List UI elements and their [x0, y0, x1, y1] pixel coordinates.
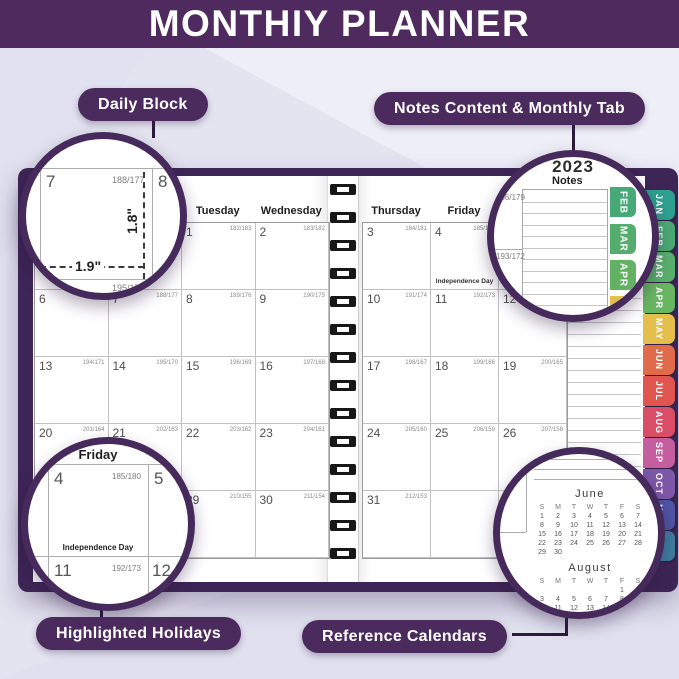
mini-calendar-date: 2: [630, 586, 646, 595]
notes-line: [534, 459, 650, 460]
product-image: MONTHIY PLANNER SundayMondayTuesdayWedne…: [0, 0, 679, 679]
holiday-label: Independence Day: [431, 278, 498, 285]
spiral-coil: [330, 520, 356, 531]
mini-calendar-date: [598, 548, 614, 557]
spiral-coil: [330, 324, 356, 335]
row-boundary-line: [494, 249, 522, 250]
magnified-month-tab-feb: FEB: [610, 187, 636, 217]
day-of-year-annotation: 198/167: [405, 360, 427, 366]
month-tab-label: SEP: [654, 442, 664, 463]
mini-calendar-date: 1: [614, 586, 630, 595]
title-banner: MONTHIY PLANNER: [0, 0, 679, 48]
mini-calendar-date: [614, 548, 630, 557]
day-of-year-annotation: 186/179: [496, 193, 525, 202]
mini-calendar-date: 26: [598, 539, 614, 548]
mini-calendar-date: 15: [534, 530, 550, 539]
callout-daily-block-label: Daily Block: [98, 96, 188, 114]
magnified-notes-line: [523, 213, 607, 214]
mini-calendar-date: 28: [630, 539, 646, 548]
day-of-year-annotation: 196/169: [230, 360, 252, 366]
month-tab-label: APR: [654, 287, 664, 309]
day-number: 30: [260, 493, 273, 507]
day-of-year-annotation: 194/171: [83, 360, 105, 366]
day-of-year-annotation: 192/173: [473, 293, 495, 299]
notes-line: [568, 322, 641, 323]
mini-calendar-date: 19: [598, 530, 614, 539]
mini-calendar-date: 6: [614, 512, 630, 521]
calendar-cell: 8189/176: [182, 290, 256, 357]
connector-daily-block: [152, 118, 155, 138]
month-tab-label: OCT: [654, 473, 664, 495]
month-tab-jun: JUN: [643, 345, 675, 375]
day-header-fragment: ay: [502, 176, 513, 187]
spiral-coil: [330, 380, 356, 391]
magnified-month-tab-mar: MAR: [610, 224, 636, 254]
mini-calendar-date: 23: [550, 539, 566, 548]
mini-calendar-dow: T: [566, 503, 582, 512]
calendar-cell: 31212/153: [363, 491, 431, 558]
mini-calendar-date: 8: [614, 595, 630, 604]
day-number: 1: [186, 225, 193, 239]
magnified-notes-line: [523, 225, 607, 226]
mini-calendar-date: 3: [534, 595, 550, 604]
calendar-cell: 18199/166: [431, 357, 499, 424]
mini-calendar-date: [582, 586, 598, 595]
spiral-coil: [330, 184, 356, 195]
mini-calendar-date: 12: [566, 604, 582, 613]
calendar-cell: 22203/162: [182, 424, 256, 491]
day-of-year-annotation: 207/158: [541, 427, 563, 433]
notes-line: [568, 346, 641, 347]
spiral-coil: [330, 296, 356, 307]
notes-line: [568, 358, 641, 359]
day-of-year-annotation: 189/176: [230, 293, 252, 299]
magnified-month-tab-label: APR: [618, 263, 629, 287]
mini-calendar-dow: M: [550, 577, 566, 586]
mini-calendar-title: August: [534, 562, 646, 574]
mini-calendar-date: 2: [550, 512, 566, 521]
magnified-notes-line: [523, 282, 607, 283]
month-tab-jul: JUL: [643, 376, 675, 406]
day-of-year-annotation: 193/172: [496, 252, 525, 261]
month-tab-apr: APR: [643, 283, 675, 313]
day-header: Thursday: [362, 205, 430, 217]
mini-calendar-date: 13: [582, 604, 598, 613]
mini-calendar-date: 11: [582, 521, 598, 530]
mini-calendar-date: 12: [598, 521, 614, 530]
row-boundary-line: [500, 532, 526, 533]
notes-tab-magnifier: 2023 ay Notes 186/179 193/172 FEBMARAPRM…: [487, 150, 659, 322]
magnified-next-day-number: 5: [154, 469, 163, 489]
magnified-notes-line: [523, 259, 607, 260]
mini-calendar-date: 5: [598, 512, 614, 521]
mini-calendar-date: 15: [614, 604, 630, 613]
day-of-year-annotation: 192/173: [112, 564, 141, 573]
reference-calendars-magnifier: JuneSMTWTFS12345678910111213141516171819…: [493, 447, 665, 619]
height-dimension-label: 1.8": [124, 205, 140, 237]
calendar-cell: 15196/169: [182, 357, 256, 424]
mini-calendar-date: 19: [566, 613, 582, 619]
magnified-below-day-number: 11: [54, 561, 72, 581]
day-number: 4: [435, 225, 442, 239]
day-of-year-annotation: 197/168: [303, 360, 325, 366]
month-tab-label: JUL: [654, 381, 664, 401]
mini-calendar-date: 7: [598, 595, 614, 604]
day-number: 23: [260, 426, 273, 440]
calendar-cell: 1182/183: [182, 223, 256, 290]
day-number: 19: [503, 359, 516, 373]
notes-line: [568, 406, 641, 407]
notes-line: [534, 469, 650, 470]
mini-calendar-date: [582, 548, 598, 557]
callout-notes-tab-label: Notes Content & Monthly Tab: [394, 100, 625, 118]
mini-calendar-date: 18: [582, 530, 598, 539]
year-label: 2023: [494, 157, 652, 177]
mini-calendar-dow: S: [534, 503, 550, 512]
width-dimension-label: 1.9": [72, 258, 104, 274]
mini-calendar-date: 6: [582, 595, 598, 604]
cell-left-line: [48, 464, 49, 604]
notes-line: [568, 430, 641, 431]
day-of-year-annotation: 184/181: [405, 226, 427, 232]
mini-calendar-dow: S: [630, 503, 646, 512]
cell-right-line: [148, 464, 149, 604]
day-number: 25: [435, 426, 448, 440]
notes-line: [568, 382, 641, 383]
day-of-year-annotation: 183/182: [303, 226, 325, 232]
height-dimension-line: [143, 172, 145, 279]
calendar-cell: 16197/168: [256, 357, 330, 424]
calendar-cell: 17198/167: [363, 357, 431, 424]
connector-reference-horizontal: [512, 633, 568, 636]
mini-calendar-dow: S: [534, 577, 550, 586]
spiral-coil: [330, 492, 356, 503]
mini-calendar-date: 17: [566, 530, 582, 539]
day-header: Wednesday: [255, 205, 329, 217]
mini-calendar-date: 10: [534, 604, 550, 613]
day-header: Tuesday: [181, 205, 255, 217]
calendar-cell: 7188/177: [109, 290, 183, 357]
mini-calendar-date: 30: [550, 548, 566, 557]
callout-reference: Reference Calendars: [302, 620, 507, 653]
spiral-coil: [330, 240, 356, 251]
day-of-year-annotation: 202/163: [156, 427, 178, 433]
day-of-year-annotation: 199/166: [473, 360, 495, 366]
magnified-month-tab-apr: APR: [610, 260, 636, 290]
day-number: 18: [435, 359, 448, 373]
holiday-label: Independence Day: [48, 543, 148, 552]
day-of-year-annotation: 191/174: [405, 293, 427, 299]
notes-line: [568, 442, 641, 443]
row-boundary-line: [26, 279, 180, 280]
spiral-coil: [330, 408, 356, 419]
cell-top-line: [28, 464, 188, 465]
mini-calendar-date: 13: [614, 521, 630, 530]
mini-calendar-date: 14: [630, 521, 646, 530]
spiral-coil: [330, 548, 356, 559]
mini-calendar-date: 16: [630, 604, 646, 613]
calendar-cell: 25206/159: [431, 424, 499, 491]
calendar-cell: 30211/154: [256, 491, 330, 558]
calendar-cell: 19200/165: [499, 357, 567, 424]
month-tab-may: MAY: [643, 314, 675, 344]
mini-calendar-date: [566, 586, 582, 595]
day-of-year-annotation: 205/160: [405, 427, 427, 433]
magnified-day-number: 4: [54, 469, 63, 489]
mini-calendar-date: 7: [630, 512, 646, 521]
magnified-notes-line: [523, 271, 607, 272]
day-number: 8: [186, 292, 193, 306]
day-number: 24: [367, 426, 380, 440]
day-number: 10: [367, 292, 380, 306]
calendar-cell: 11192/173: [431, 290, 499, 357]
day-number: 3: [367, 225, 374, 239]
notes-line: [568, 370, 641, 371]
mini-calendar-date: 3: [566, 512, 582, 521]
holidays-magnifier: Friday 4 185/180 5 Independence Day 11 1…: [21, 437, 195, 611]
mini-calendar-date: 11: [550, 604, 566, 613]
mini-calendar-dow: W: [582, 503, 598, 512]
mini-calendar-date: [566, 548, 582, 557]
callout-holidays-label: Highlighted Holidays: [56, 625, 221, 643]
calendar-cell: 14195/170: [109, 357, 183, 424]
calendar-cell: 10191/174: [363, 290, 431, 357]
daily-block-magnifier: 7 188/177 8 1.8" 1.9" 14 195/170: [19, 132, 187, 300]
calendar-cell: 9190/175: [256, 290, 330, 357]
mini-calendar-title: June: [534, 488, 646, 500]
day-of-year-annotation: 211/154: [304, 494, 325, 500]
spiral-coil: [330, 436, 356, 447]
day-number: 16: [260, 359, 273, 373]
month-tab-label: MAY: [654, 318, 664, 340]
mini-calendar-date: 20: [614, 530, 630, 539]
mini-calendar-date: 14: [598, 604, 614, 613]
day-of-year-annotation: 182/183: [230, 226, 252, 232]
mini-calendar-date: 4: [550, 595, 566, 604]
day-of-year-annotation: 190/175: [303, 293, 325, 299]
mini-calendar-date: 9: [630, 595, 646, 604]
mini-calendar-date: 27: [614, 539, 630, 548]
mini-calendar-dow: S: [630, 577, 646, 586]
annotation-fragment: 81: [29, 472, 38, 481]
magnified-next-below-day-number: 12: [152, 561, 171, 581]
calendar-cell: 24205/160: [363, 424, 431, 491]
day-of-year-annotation: 210/155: [230, 494, 252, 500]
day-of-year-annotation: 201/164: [83, 427, 105, 433]
calendar-cell: 13194/171: [35, 357, 109, 424]
day-of-year-annotation: 195/170: [112, 283, 145, 293]
callout-reference-label: Reference Calendars: [322, 628, 487, 646]
june-reference-calendar: JuneSMTWTFS12345678910111213141516171819…: [534, 488, 646, 557]
mini-calendar-dow: F: [614, 503, 630, 512]
annotation-fragment: 74: [28, 564, 37, 573]
month-tab-label: JUN: [654, 349, 664, 370]
mini-calendar-grid: SMTWTFS123456789101112131415161718192021…: [534, 503, 646, 557]
spiral-coil: [330, 212, 356, 223]
callout-daily-block: Daily Block: [78, 88, 208, 121]
day-number: 22: [186, 426, 199, 440]
day-of-year-annotation: 212/153: [405, 494, 427, 500]
magnified-notes-label: Notes: [552, 175, 583, 187]
mini-calendar-date: [550, 586, 566, 595]
month-tab-label: AUG: [654, 411, 664, 434]
day-of-year-annotation: 200/165: [541, 360, 563, 366]
magnified-next-day-number: 8: [158, 172, 167, 192]
mini-calendar-date: 24: [566, 539, 582, 548]
notes-line: [568, 334, 641, 335]
mini-calendar-date: [598, 586, 614, 595]
calendar-cell: 6187/178: [35, 290, 109, 357]
magnified-day-header: Friday: [48, 447, 148, 462]
day-number: 9: [260, 292, 267, 306]
callout-notes-tab: Notes Content & Monthly Tab: [374, 92, 645, 125]
magnified-month-tab-label: MAR: [618, 226, 629, 252]
day-of-year-annotation: 185/180: [112, 472, 141, 481]
day-number: 14: [113, 359, 126, 373]
callout-holidays: Highlighted Holidays: [36, 617, 241, 650]
cell-right-line: [152, 168, 153, 293]
spiral-coil: [330, 464, 356, 475]
mini-calendar-date: 29: [534, 548, 550, 557]
day-number: 31: [367, 493, 380, 507]
mini-calendar-date: [534, 586, 550, 595]
month-tab-aug: AUG: [643, 407, 675, 437]
day-of-year-annotation: 195/170: [156, 360, 178, 366]
magnified-notes-line: [523, 294, 607, 295]
magnified-notes-line: [523, 236, 607, 237]
month-tab-sep: SEP: [643, 438, 675, 468]
day-header: Friday: [430, 205, 498, 217]
calendar-cell: 2183/182: [256, 223, 330, 290]
day-number: 13: [39, 359, 52, 373]
magnified-month-tab-label: FEB: [618, 191, 629, 214]
calendar-cell: [431, 491, 499, 558]
mini-calendar-date: 10: [566, 521, 582, 530]
mini-calendar-date: 22: [534, 539, 550, 548]
magnified-notes-line: [523, 305, 607, 306]
day-number: 2: [260, 225, 267, 239]
banner-title: MONTHIY PLANNER: [149, 3, 531, 45]
mini-calendar-date: 8: [534, 521, 550, 530]
mini-calendar-date: 1: [534, 512, 550, 521]
mini-calendar-dow: T: [598, 577, 614, 586]
day-number: 20: [39, 426, 52, 440]
august-reference-calendar: AugustSMTWTFS123456789101112131415161718…: [534, 562, 646, 619]
day-of-year-annotation: 188/177: [112, 175, 145, 185]
cell-top-line: [40, 168, 180, 169]
mini-calendar-date: 5: [566, 595, 582, 604]
mini-calendar-date: 4: [582, 512, 598, 521]
day-number: 26: [503, 426, 516, 440]
magnified-day-number: 7: [46, 172, 55, 192]
notes-line: [534, 479, 650, 480]
mini-calendar-dow: M: [550, 503, 566, 512]
day-of-year-annotation: 188/177: [156, 293, 178, 299]
notes-line: [568, 418, 641, 419]
mini-calendar-date: 9: [550, 521, 566, 530]
row-boundary-line: [28, 556, 188, 557]
mini-calendar-dow: T: [566, 577, 582, 586]
spiral-coil: [330, 352, 356, 363]
calendar-cell: 3184/181: [363, 223, 431, 290]
mini-calendar-date: 21: [630, 530, 646, 539]
day-number: 6: [39, 292, 46, 306]
mini-calendar-date: 16: [550, 530, 566, 539]
magnified-notes-line: [523, 248, 607, 249]
cell-left-line: [40, 168, 41, 279]
column-boundary-line: [526, 454, 527, 532]
mini-calendar-dow: F: [614, 577, 630, 586]
day-of-year-annotation: 206/159: [473, 427, 495, 433]
day-of-year-annotation: 203/162: [230, 427, 252, 433]
magnified-notes-line: [523, 202, 607, 203]
mini-calendar-date: [630, 548, 646, 557]
spiral-coil: [330, 268, 356, 279]
mini-calendar-date: 25: [582, 539, 598, 548]
calendar-cell: 23204/161: [256, 424, 330, 491]
mini-calendar-dow: T: [598, 503, 614, 512]
day-of-year-annotation: 204/161: [303, 427, 325, 433]
day-number: 17: [367, 359, 380, 373]
notes-line: [568, 394, 641, 395]
mini-calendar-dow: W: [582, 577, 598, 586]
day-number: 11: [435, 292, 447, 306]
day-number: 15: [186, 359, 199, 373]
magnified-notes-box: [522, 189, 608, 317]
